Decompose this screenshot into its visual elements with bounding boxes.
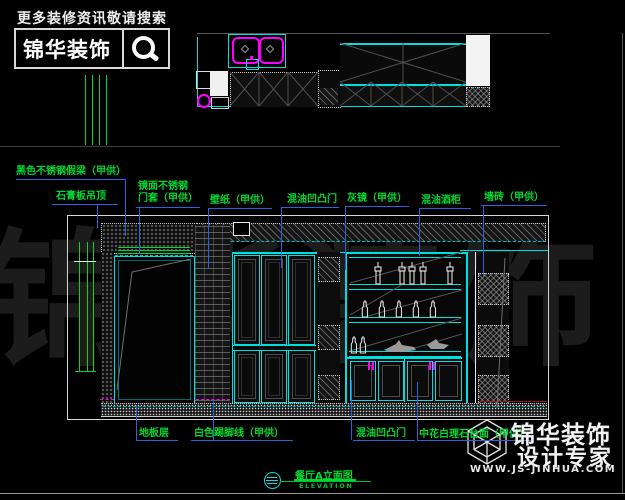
- pipe-tick-line: [74, 261, 96, 262]
- right-soffit-line: [460, 250, 548, 251]
- search-logo-box[interactable]: 锦华装饰: [14, 28, 170, 69]
- plan-stove-circle: [197, 94, 211, 108]
- leader-line: [136, 207, 200, 208]
- plan-fridge-white: [466, 35, 490, 86]
- plan-counter-a: [230, 72, 319, 107]
- drawing-title: 餐厅A立面图: [295, 467, 353, 482]
- elevation-marker-icon: [264, 472, 281, 489]
- door-handle: [372, 362, 374, 370]
- label-paint-wine-cabinet: 混油酒柜: [421, 195, 461, 207]
- label-gypsum-ceiling: 石膏板吊顶: [56, 191, 106, 203]
- cube-logo-icon: [468, 420, 506, 464]
- plan-hatch-block: [319, 88, 338, 105]
- plan-block-dark: [211, 97, 229, 109]
- leader-line: [353, 440, 415, 441]
- wine-cabinet-inner-top: [349, 257, 461, 258]
- pipe-base-line: [75, 371, 96, 372]
- door-casing-line: [118, 250, 190, 251]
- wall-corner-line: [475, 252, 476, 403]
- baseboard-red-line: [480, 401, 547, 402]
- leader-line: [139, 207, 140, 254]
- beam-notch: [233, 222, 250, 236]
- label-wallpaper: 壁纸（甲供）: [210, 195, 270, 207]
- bottom-border-line: [0, 493, 625, 494]
- leader-line: [125, 179, 126, 236]
- wall-tile-hatch: [478, 325, 509, 357]
- label-paint-panel-door-bottom: 混油凹凸门: [356, 428, 406, 440]
- cabinet-door: [261, 255, 287, 345]
- leader-line: [136, 440, 178, 441]
- logo-text: 锦华装饰: [16, 34, 122, 64]
- skirting-dashed-mark: [100, 399, 114, 401]
- leader-line: [16, 179, 126, 180]
- leader-line: [419, 208, 471, 209]
- decor-strip-hatch: [318, 375, 340, 400]
- plan-lower-wall-line: [0, 146, 560, 147]
- leader-line: [417, 382, 418, 440]
- leader-line: [208, 208, 272, 209]
- label-wall-tile: 墙砖（甲供）: [484, 192, 544, 204]
- plan-pipe-line: [92, 75, 93, 145]
- label-paint-panel-door-top: 混油凹凸门: [287, 194, 337, 206]
- leader-line: [191, 440, 293, 441]
- left-wall-hatch-side: [101, 252, 114, 403]
- faucet: [246, 59, 259, 70]
- base-cabinet-door: [435, 361, 462, 401]
- right-border-line: [622, 33, 623, 493]
- label-grey-mirror: 灰镜（甲供）: [347, 193, 407, 205]
- label-white-skirting: 白色踢脚线（甲供）: [194, 428, 284, 440]
- plan-pipe-line: [106, 75, 107, 145]
- wall-tile-hatch: [478, 375, 509, 404]
- leader-line: [351, 380, 352, 440]
- leader-line: [281, 207, 339, 208]
- plan-block-white: [210, 71, 228, 96]
- base-cabinet-divider: [404, 358, 405, 402]
- wallpaper-column: [195, 225, 230, 413]
- search-hint-text: 更多装修资讯敬请搜索: [17, 8, 167, 28]
- drawing-subtitle: ELEVATION: [299, 482, 353, 490]
- door-opening-inner: [118, 260, 191, 400]
- brand-website-link[interactable]: WWW.JS-JINHUA.COM: [470, 464, 616, 475]
- door-handle: [368, 362, 370, 370]
- wall-tile-hatch: [478, 273, 509, 305]
- leader-line: [52, 204, 118, 205]
- leader-line: [483, 205, 484, 277]
- cabinet-door: [261, 350, 287, 403]
- leader-line: [481, 205, 547, 206]
- label-fake-beam: 黑色不锈钢假梁（甲供）: [16, 166, 126, 178]
- plan-pipe-line: [85, 75, 86, 145]
- base-cabinet-door: [378, 361, 404, 401]
- door-casing-line: [118, 247, 190, 248]
- door-casing-line: [118, 253, 190, 254]
- plan-pipe-line: [99, 75, 100, 145]
- cad-screenshot: 锦华装饰 更多装修资讯敬请搜索 锦华装饰: [0, 0, 625, 500]
- wine-shelf: [349, 284, 461, 290]
- plan-island-block: [340, 43, 466, 86]
- decor-strip-hatch: [318, 257, 340, 282]
- label-mirror-door-casing: 镜面不锈钢 门套（甲供）: [138, 181, 198, 205]
- leader-line: [345, 206, 409, 207]
- label-floor-layer: 地板层: [139, 428, 169, 440]
- search-icon: [124, 30, 168, 67]
- door-handle: [433, 362, 435, 370]
- decor-strip-hatch: [318, 325, 340, 350]
- wine-shelf: [349, 317, 461, 323]
- plan-block-outline: [196, 71, 211, 89]
- leader-line: [97, 204, 98, 228]
- door-handle: [429, 362, 431, 370]
- leader-line: [136, 405, 137, 440]
- leader-line: [419, 208, 420, 256]
- cabinet-door: [288, 350, 315, 403]
- plan-hatch-block: [466, 87, 490, 107]
- cabinet-door: [234, 255, 260, 345]
- floor-dashed-line: [103, 406, 545, 408]
- cabinet-door: [234, 350, 260, 403]
- leader-line: [208, 208, 209, 268]
- leader-line: [345, 206, 346, 270]
- leader-line: [281, 207, 282, 268]
- faucet-handle: [250, 56, 253, 60]
- cabinet-door: [288, 255, 315, 345]
